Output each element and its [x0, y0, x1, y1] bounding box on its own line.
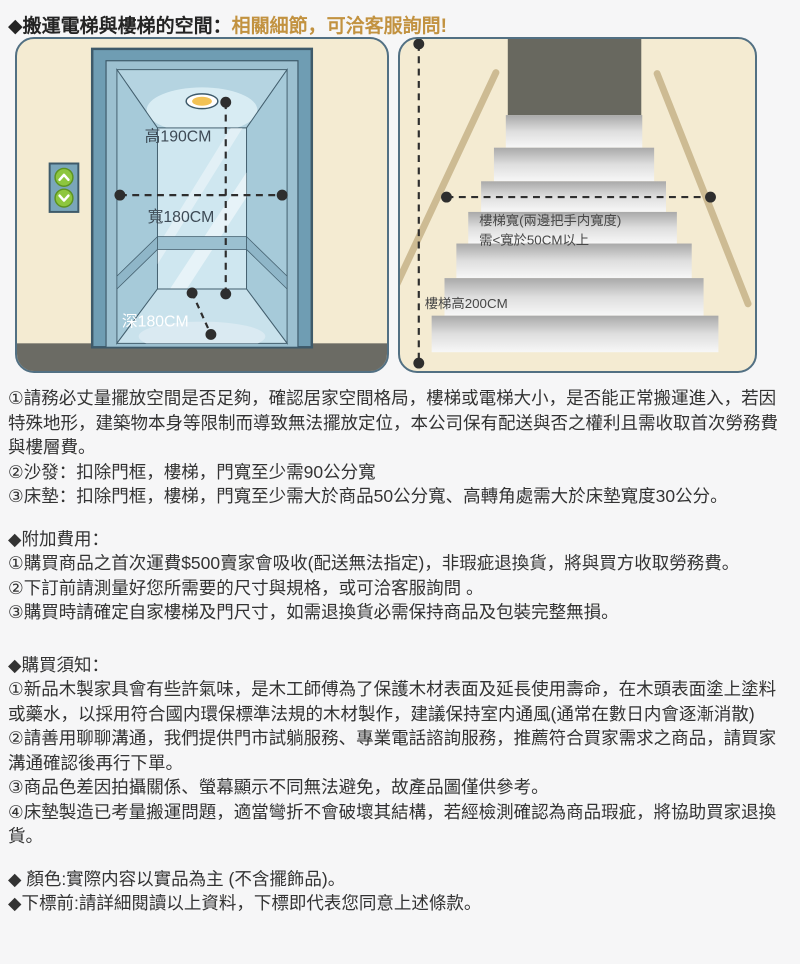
- elevator-diagram: 高190CM 寬180CM 深180CM: [17, 39, 387, 371]
- additional-fees-title: ◆附加費用：: [8, 527, 788, 552]
- purchase-notes-section: ◆購買須知： ①新品木製家具會有些許氣味，是木工師傅為了保護木材表面及延長使用壽…: [8, 653, 788, 849]
- stairs-width-label-line2: 需<寬於50CM以上: [479, 232, 589, 248]
- stairs-height-label: 樓梯高200CM: [425, 295, 508, 311]
- purchase-note-4: ④床墊製造已考量搬運問題，適當彎折不會破壞其結構，若經檢測確認為商品瑕疵，將協助…: [8, 800, 788, 849]
- color-note: ◆ 顏色:實際内容以實品為主 (不含擺飾品)。: [8, 867, 788, 892]
- fee-note-1: ①購買商品之首次運費$500賣家會吸收(配送無法指定)，非瑕疵退換貨，將與買方收…: [8, 551, 788, 576]
- space-note-3: ③床墊：扣除門框，樓梯，門寬至少需大於商品50公分寬、高轉角處需大於床墊寬度30…: [8, 484, 788, 509]
- space-requirements-section: ①請務必丈量擺放空間是否足夠，確認居家空間格局，樓梯或電梯大小，是否能正常搬運進…: [8, 386, 788, 509]
- purchase-notes-title: ◆購買須知：: [8, 653, 788, 678]
- elevator-up-button-icon: [55, 168, 73, 186]
- elevator-diagram-panel: 高190CM 寬180CM 深180CM: [15, 37, 389, 373]
- order-note: ◆下標前:請詳細閱讀以上資料，下標即代表您同意上述條款。: [8, 891, 788, 916]
- diagram-panels: 高190CM 寬180CM 深180CM: [15, 37, 800, 373]
- additional-fees-section: ◆附加費用： ①購買商品之首次運費$500賣家會吸收(配送無法指定)，非瑕疵退換…: [8, 527, 788, 625]
- elevator-height-label: 高190CM: [145, 128, 212, 146]
- stair-landing: [508, 39, 641, 115]
- fee-note-2: ②下訂前請測量好您所需要的尺寸與規格，或可洽客服詢問 。: [8, 576, 788, 601]
- purchase-note-2: ②請善用聊聊溝通，我們提供門市試躺服務、專業電話諮詢服務，推薦符合買家需求之商品…: [8, 726, 788, 775]
- elevator-width-label: 寬180CM: [148, 208, 215, 226]
- elevator-depth-label: 深180CM: [122, 313, 189, 331]
- stairs-diagram: 樓梯寬(兩邊把手内寬度) 需<寬於50CM以上 樓梯高200CM: [400, 39, 755, 371]
- header-highlight-text: 相關細節，可洽客服詢問!: [232, 16, 447, 37]
- stairs-diagram-panel: 樓梯寬(兩邊把手内寬度) 需<寬於50CM以上 樓梯高200CM: [398, 37, 757, 373]
- footer-notes-section: ◆ 顏色:實際内容以實品為主 (不含擺飾品)。 ◆下標前:請詳細閱讀以上資料，下…: [8, 867, 788, 916]
- space-note-1: ①請務必丈量擺放空間是否足夠，確認居家空間格局，樓梯或電梯大小，是否能正常搬運進…: [8, 386, 788, 460]
- elevator-lamp-icon: [186, 94, 218, 109]
- fee-note-3: ③購買時請確定自家樓梯及門尺寸，如需退換貨必需保持商品及包裝完整無損。: [8, 600, 788, 625]
- space-note-2: ②沙發：扣除門框，樓梯，門寬至少需90公分寬: [8, 460, 788, 485]
- notice-text-area: ①請務必丈量擺放空間是否足夠，確認居家空間格局，樓梯或電梯大小，是否能正常搬運進…: [0, 373, 800, 916]
- purchase-note-3: ③商品色差因拍攝關係、螢幕顯示不同無法避免，故產品圖僅供參考。: [8, 775, 788, 800]
- stairs-width-label-line1: 樓梯寬(兩邊把手内寬度): [479, 212, 621, 228]
- purchase-note-1: ①新品木製家具會有些許氣味，是木工師傅為了保護木材表面及延長使用壽命，在木頭表面…: [8, 677, 788, 726]
- elevator-call-panel: [50, 164, 79, 212]
- section-header: ◆搬運電梯與樓梯的空間：相關細節，可洽客服詢問!: [0, 0, 800, 37]
- header-title: ◆搬運電梯與樓梯的空間：: [8, 16, 232, 37]
- elevator-down-button-icon: [55, 189, 73, 207]
